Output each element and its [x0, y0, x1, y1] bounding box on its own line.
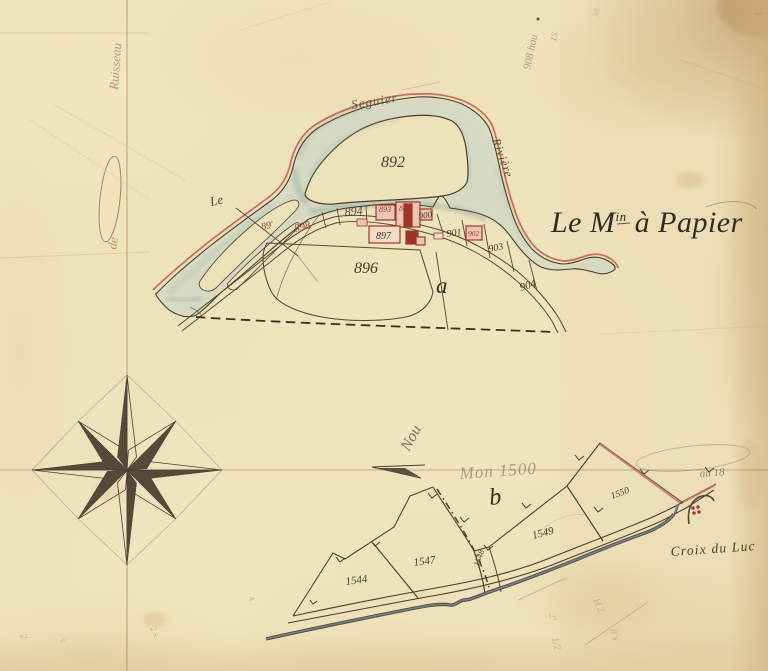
svg-text:au 18: au 18: [699, 466, 725, 480]
svg-text:902: 902: [468, 229, 480, 238]
svg-text:893: 893: [379, 205, 391, 214]
svg-text:897: 897: [376, 231, 392, 242]
svg-text:896: 896: [354, 260, 378, 277]
svg-text:900: 900: [418, 209, 433, 221]
svg-text:84: 84: [399, 204, 407, 213]
svg-text:901: 901: [446, 227, 462, 240]
svg-text:Le Min à Papier: Le Min à Papier: [550, 206, 743, 239]
svg-text:892: 892: [381, 154, 405, 171]
svg-text:894: 894: [344, 203, 363, 219]
svg-text:a: a: [436, 273, 448, 298]
